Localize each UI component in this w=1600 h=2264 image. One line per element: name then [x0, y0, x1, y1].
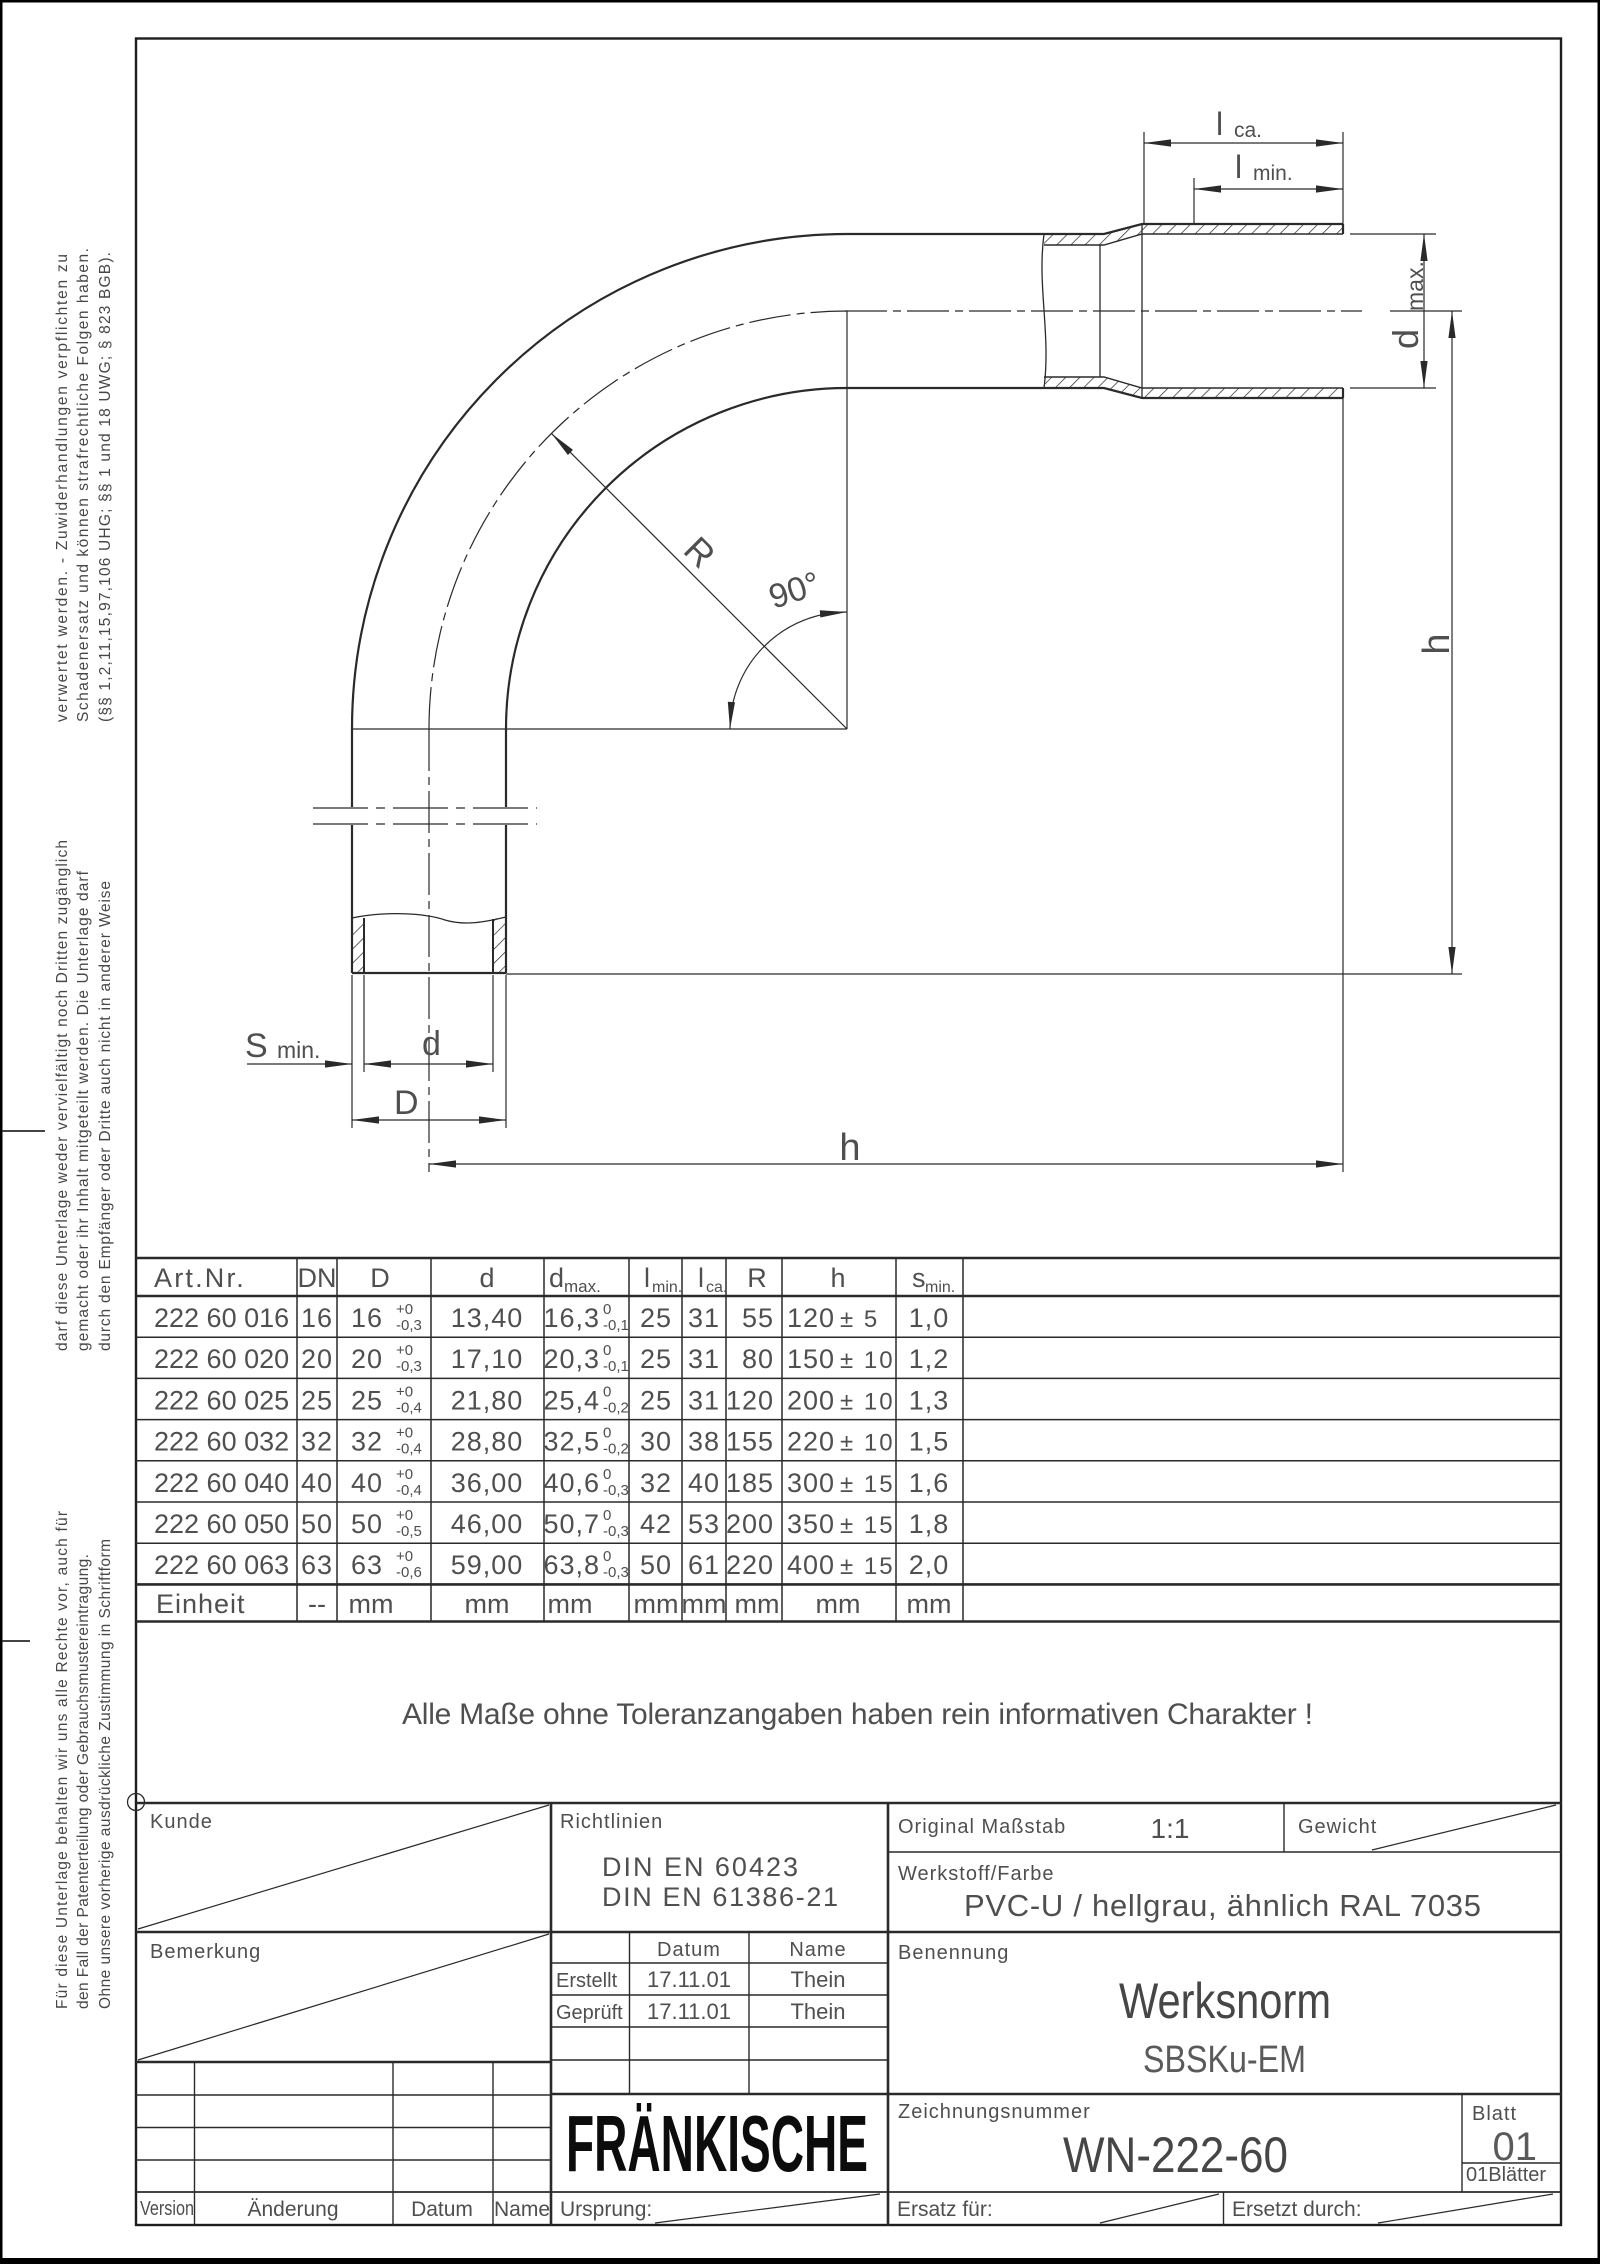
- svg-text:-0,6: -0,6: [396, 1564, 422, 1581]
- svg-text:Ohne unsere vorherige ausdrück: Ohne unsere vorherige ausdrückliche Zust…: [97, 1539, 114, 2009]
- svg-text:0: 0: [603, 1342, 611, 1359]
- svg-text:200: 200: [726, 1509, 774, 1539]
- svg-text:-0,2: -0,2: [603, 1399, 629, 1416]
- svg-text:-0,4: -0,4: [396, 1441, 422, 1458]
- svg-text:63,8: 63,8: [543, 1550, 600, 1580]
- svg-text:Version: Version: [140, 2198, 194, 2220]
- svg-text:50: 50: [640, 1550, 672, 1580]
- svg-text:25: 25: [640, 1385, 672, 1415]
- svg-text:28,80: 28,80: [451, 1427, 524, 1457]
- svg-text:-0,2: -0,2: [603, 1441, 629, 1458]
- svg-text:20,3: 20,3: [543, 1344, 600, 1374]
- svg-text:-0,3: -0,3: [396, 1358, 422, 1375]
- svg-text:25: 25: [351, 1385, 383, 1415]
- svg-text:25,4: 25,4: [543, 1385, 600, 1415]
- svg-text:222 60 050: 222 60 050: [154, 1509, 289, 1539]
- svg-text:D: D: [370, 1263, 390, 1293]
- svg-text:h: h: [830, 1263, 845, 1293]
- svg-text:Art.Nr.: Art.Nr.: [154, 1263, 246, 1293]
- svg-text:Änderung: Änderung: [247, 2198, 338, 2221]
- svg-text:gemacht oder ihr Inhalt mitget: gemacht oder ihr Inhalt mitgeteilt werde…: [75, 870, 92, 1351]
- svg-text:ca.: ca.: [706, 1279, 727, 1296]
- svg-text:s: s: [912, 1263, 926, 1293]
- svg-text:0: 0: [603, 1507, 611, 1524]
- svg-text:1,5: 1,5: [909, 1427, 950, 1457]
- svg-text:Datum: Datum: [657, 1939, 721, 1961]
- svg-text:Name: Name: [494, 2198, 550, 2221]
- svg-text:32,5: 32,5: [543, 1427, 600, 1457]
- svg-text:50,7: 50,7: [543, 1509, 600, 1539]
- svg-text:+0: +0: [396, 1548, 413, 1565]
- svg-text:--: --: [308, 1589, 326, 1619]
- svg-text:durch den Empfänger oder Dritt: durch den Empfänger oder Dritte auch nic…: [97, 881, 114, 1351]
- svg-text:± 10: ± 10: [840, 1388, 895, 1415]
- svg-text:-0,3: -0,3: [603, 1564, 629, 1581]
- svg-text:31: 31: [688, 1303, 720, 1333]
- svg-text:222 60 040: 222 60 040: [154, 1468, 289, 1498]
- svg-text:mm: mm: [634, 1589, 679, 1619]
- svg-text:1,6: 1,6: [909, 1468, 950, 1498]
- svg-text:Kunde: Kunde: [150, 1811, 213, 1833]
- svg-text:Name: Name: [789, 1939, 846, 1961]
- svg-text:+0: +0: [396, 1383, 413, 1400]
- svg-text:min.: min.: [925, 1279, 955, 1296]
- svg-text:+0: +0: [396, 1507, 413, 1524]
- svg-text:Erstellt: Erstellt: [556, 1970, 618, 1992]
- svg-text:Blatt: Blatt: [1472, 2103, 1517, 2125]
- svg-text:Alle Maße ohne Toleranzangaben: Alle Maße ohne Toleranzangaben haben rei…: [402, 1698, 1313, 1731]
- svg-text:42: 42: [640, 1509, 672, 1539]
- svg-text:20: 20: [301, 1344, 333, 1374]
- svg-text:+0: +0: [396, 1425, 413, 1442]
- svg-text:Werksnorm: Werksnorm: [1119, 1973, 1331, 2029]
- svg-text:-0,1: -0,1: [603, 1358, 629, 1375]
- svg-text:01: 01: [1493, 2125, 1538, 2169]
- svg-text:verwertet werden. - Zuwiderhan: verwertet werden. - Zuwiderhandlungen ve…: [54, 254, 71, 722]
- svg-text:S: S: [245, 1027, 268, 1065]
- svg-text:400: 400: [787, 1550, 835, 1580]
- svg-text:46,00: 46,00: [451, 1509, 524, 1539]
- svg-text:Benennung: Benennung: [898, 1942, 1009, 1964]
- svg-text:SBSKu-EM: SBSKu-EM: [1143, 2039, 1306, 2081]
- svg-text:± 10: ± 10: [840, 1347, 895, 1374]
- svg-text:d: d: [422, 1025, 441, 1063]
- svg-text:17,10: 17,10: [451, 1344, 524, 1374]
- svg-text:13,40: 13,40: [451, 1303, 524, 1333]
- svg-text:h: h: [1416, 633, 1458, 654]
- svg-text:-0,5: -0,5: [396, 1523, 422, 1540]
- svg-text:222 60 032: 222 60 032: [154, 1427, 289, 1457]
- svg-text:63: 63: [301, 1550, 333, 1580]
- svg-text:Richtlinien: Richtlinien: [560, 1811, 663, 1833]
- svg-text:d: d: [549, 1263, 564, 1293]
- svg-text:-0,3: -0,3: [603, 1482, 629, 1499]
- svg-text:220: 220: [726, 1550, 774, 1580]
- svg-text:-0,1: -0,1: [603, 1317, 629, 1334]
- svg-text:61: 61: [688, 1550, 720, 1580]
- svg-text:1:1: 1:1: [1151, 1813, 1190, 1844]
- svg-text:150: 150: [787, 1344, 835, 1374]
- svg-text:mm: mm: [349, 1589, 394, 1619]
- svg-text:-0,3: -0,3: [603, 1523, 629, 1540]
- svg-text:FRÄNKISCHE: FRÄNKISCHE: [566, 2099, 868, 2188]
- svg-text:31: 31: [688, 1385, 720, 1415]
- svg-text:222 60 020: 222 60 020: [154, 1344, 289, 1374]
- svg-text:55: 55: [742, 1303, 774, 1333]
- svg-text:53: 53: [688, 1509, 720, 1539]
- svg-text:32: 32: [301, 1427, 333, 1457]
- svg-text:mm: mm: [548, 1589, 593, 1619]
- svg-text:PVC-U / hellgrau, ähnlich RAL: PVC-U / hellgrau, ähnlich RAL 7035: [964, 1888, 1481, 1923]
- svg-text:+0: +0: [396, 1301, 413, 1318]
- svg-text:Thein: Thein: [790, 1967, 845, 1992]
- svg-text:l: l: [644, 1263, 650, 1293]
- svg-text:50: 50: [351, 1509, 383, 1539]
- svg-text:25: 25: [640, 1344, 672, 1374]
- svg-text:38: 38: [688, 1427, 720, 1457]
- svg-text:Ersetzt durch:: Ersetzt durch:: [1232, 2198, 1362, 2221]
- svg-text:± 15: ± 15: [840, 1553, 895, 1580]
- svg-text:Einheit: Einheit: [156, 1589, 246, 1619]
- svg-text:32: 32: [351, 1427, 383, 1457]
- svg-text:2,0: 2,0: [909, 1550, 950, 1580]
- svg-text:mm: mm: [682, 1589, 727, 1619]
- svg-text:darf diese Unterlage weder ver: darf diese Unterlage weder vervielfältig…: [54, 840, 71, 1351]
- svg-text:16,3: 16,3: [543, 1303, 600, 1333]
- svg-text:+0: +0: [396, 1342, 413, 1359]
- svg-text:max.: max.: [1402, 261, 1428, 311]
- svg-text:Original Maßstab: Original Maßstab: [898, 1816, 1066, 1838]
- svg-text:Bemerkung: Bemerkung: [150, 1941, 261, 1963]
- svg-text:Für diese Unterlage behalten w: Für diese Unterlage behalten wir uns all…: [54, 1511, 71, 2009]
- svg-text:WN-222-60: WN-222-60: [1063, 2127, 1288, 2183]
- svg-text:59,00: 59,00: [451, 1550, 524, 1580]
- svg-text:-0,4: -0,4: [396, 1399, 422, 1416]
- svg-text:± 15: ± 15: [840, 1471, 895, 1498]
- svg-text:185: 185: [726, 1468, 774, 1498]
- svg-text:40: 40: [688, 1468, 720, 1498]
- svg-text:± 5: ± 5: [840, 1306, 879, 1333]
- svg-text:min.: min.: [277, 1037, 320, 1063]
- svg-text:50: 50: [301, 1509, 333, 1539]
- svg-text:R: R: [747, 1263, 767, 1293]
- svg-text:16: 16: [351, 1303, 383, 1333]
- svg-text:± 10: ± 10: [840, 1430, 895, 1457]
- svg-text:ca.: ca.: [1234, 119, 1262, 142]
- svg-text:l: l: [1235, 149, 1242, 185]
- svg-text:222 60 016: 222 60 016: [154, 1303, 289, 1333]
- svg-text:20: 20: [351, 1344, 383, 1374]
- svg-text:Geprüft: Geprüft: [556, 2002, 623, 2024]
- svg-text:1,8: 1,8: [909, 1509, 950, 1539]
- svg-text:d: d: [479, 1263, 494, 1293]
- svg-text:25: 25: [640, 1303, 672, 1333]
- svg-text:h: h: [839, 1127, 860, 1169]
- svg-text:± 15: ± 15: [840, 1512, 895, 1539]
- svg-text:40: 40: [301, 1468, 333, 1498]
- svg-text:63: 63: [351, 1550, 383, 1580]
- svg-text:120: 120: [787, 1303, 835, 1333]
- svg-text:mm: mm: [735, 1589, 780, 1619]
- svg-text:DN: DN: [298, 1263, 337, 1293]
- svg-text:min.: min.: [1253, 162, 1293, 185]
- svg-text:25: 25: [301, 1385, 333, 1415]
- svg-text:222 60 063: 222 60 063: [154, 1550, 289, 1580]
- svg-text:D: D: [394, 1084, 419, 1122]
- svg-text:32: 32: [640, 1468, 672, 1498]
- svg-text:l: l: [1216, 106, 1223, 142]
- svg-text:l: l: [698, 1263, 704, 1293]
- svg-text:40,6: 40,6: [543, 1468, 600, 1498]
- svg-text:Ursprung:: Ursprung:: [560, 2198, 652, 2221]
- svg-text:300: 300: [787, 1468, 835, 1498]
- svg-text:40: 40: [351, 1468, 383, 1498]
- svg-text:16: 16: [301, 1303, 333, 1333]
- svg-text:120: 120: [726, 1385, 774, 1415]
- svg-text:Zeichnungsnummer: Zeichnungsnummer: [898, 2101, 1091, 2123]
- svg-text:max.: max.: [564, 1277, 601, 1296]
- svg-text:(§§ 1,2,11,15,97,106 UHG; §§ 1: (§§ 1,2,11,15,97,106 UHG; §§ 1 und 18 UW…: [97, 252, 114, 722]
- svg-text:220: 220: [787, 1427, 835, 1457]
- svg-text:21,80: 21,80: [451, 1385, 524, 1415]
- svg-text:155: 155: [726, 1427, 774, 1457]
- svg-text:0: 0: [603, 1425, 611, 1442]
- svg-text:01Blätter: 01Blätter: [1466, 2164, 1546, 2186]
- svg-text:17.11.01: 17.11.01: [647, 1967, 731, 1992]
- svg-text:31: 31: [688, 1344, 720, 1374]
- svg-text:1,0: 1,0: [909, 1303, 950, 1333]
- svg-text:Werkstoff/Farbe: Werkstoff/Farbe: [898, 1863, 1055, 1885]
- svg-text:30: 30: [640, 1427, 672, 1457]
- svg-text:0: 0: [603, 1301, 611, 1318]
- svg-text:36,00: 36,00: [451, 1468, 524, 1498]
- svg-text:80: 80: [742, 1344, 774, 1374]
- svg-text:Ersatz für:: Ersatz für:: [897, 2198, 993, 2221]
- svg-text:+0: +0: [396, 1466, 413, 1483]
- svg-text:-0,3: -0,3: [396, 1317, 422, 1334]
- svg-text:DIN EN 61386-21: DIN EN 61386-21: [602, 1882, 838, 1912]
- svg-text:min.: min.: [652, 1279, 682, 1296]
- svg-text:222 60 025: 222 60 025: [154, 1385, 289, 1415]
- svg-text:den Fall der Patenterteilung o: den Fall der Patenterteilung oder Gebrau…: [75, 1554, 92, 2009]
- svg-text:Thein: Thein: [790, 1999, 845, 2024]
- svg-text:mm: mm: [907, 1589, 952, 1619]
- svg-text:200: 200: [787, 1385, 835, 1415]
- svg-text:0: 0: [603, 1466, 611, 1483]
- svg-text:Schadenersatz und können straf: Schadenersatz und können strafrechtliche…: [75, 248, 92, 722]
- svg-text:0: 0: [603, 1548, 611, 1565]
- svg-text:mm: mm: [816, 1589, 861, 1619]
- svg-text:mm: mm: [465, 1589, 510, 1619]
- svg-text:1,2: 1,2: [909, 1344, 950, 1374]
- svg-text:350: 350: [787, 1509, 835, 1539]
- svg-text:1,3: 1,3: [909, 1385, 950, 1415]
- svg-text:Gewicht: Gewicht: [1298, 1816, 1377, 1838]
- svg-text:0: 0: [603, 1383, 611, 1400]
- svg-text:d: d: [1385, 329, 1426, 349]
- svg-text:Datum: Datum: [411, 2198, 473, 2221]
- svg-text:-0,4: -0,4: [396, 1482, 422, 1499]
- svg-text:17.11.01: 17.11.01: [647, 1999, 731, 2024]
